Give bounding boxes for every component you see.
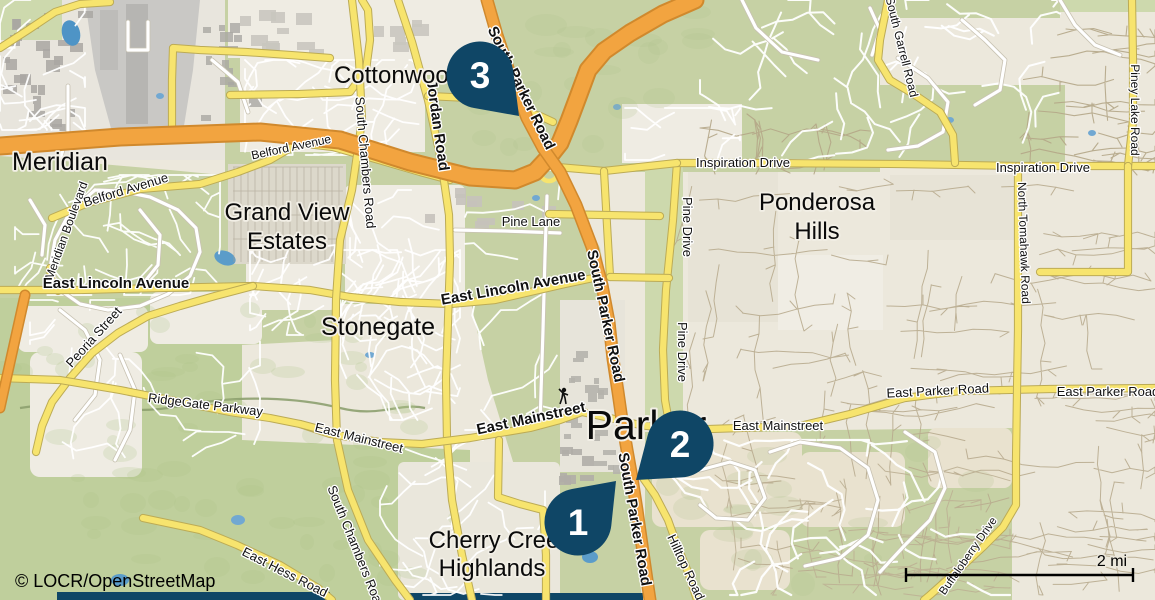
svg-text:Inspiration Drive: Inspiration Drive	[696, 155, 790, 170]
svg-text:East Parker Road: East Parker Road	[1057, 384, 1155, 399]
svg-text:2 mi: 2 mi	[1097, 553, 1127, 570]
svg-text:East Lincoln Avenue: East Lincoln Avenue	[43, 275, 189, 292]
svg-text:Stonegate: Stonegate	[321, 313, 435, 341]
svg-text:Ponderosa: Ponderosa	[759, 189, 876, 216]
svg-text:Pine Lane: Pine Lane	[502, 214, 561, 229]
svg-text:Pine Drive: Pine Drive	[675, 322, 690, 382]
svg-text:Grand View: Grand View	[225, 199, 351, 226]
svg-text:Piney Lake Road: Piney Lake Road	[1128, 64, 1142, 155]
svg-text:Inspiration Drive: Inspiration Drive	[996, 160, 1090, 175]
svg-text:Pine Drive: Pine Drive	[680, 197, 695, 257]
svg-text:Meridian: Meridian	[12, 148, 108, 176]
svg-text:Cottonwood: Cottonwood	[334, 62, 462, 89]
svg-text:Estates: Estates	[247, 228, 327, 255]
svg-text:East Mainstreet: East Mainstreet	[733, 418, 824, 433]
svg-text:Hills: Hills	[794, 218, 839, 245]
svg-text:2: 2	[670, 424, 691, 465]
svg-text:Highlands: Highlands	[439, 555, 546, 582]
svg-text:3: 3	[470, 55, 491, 96]
svg-text:1: 1	[568, 502, 589, 543]
svg-text:© LOCR/OpenStreetMap: © LOCR/OpenStreetMap	[15, 571, 215, 591]
